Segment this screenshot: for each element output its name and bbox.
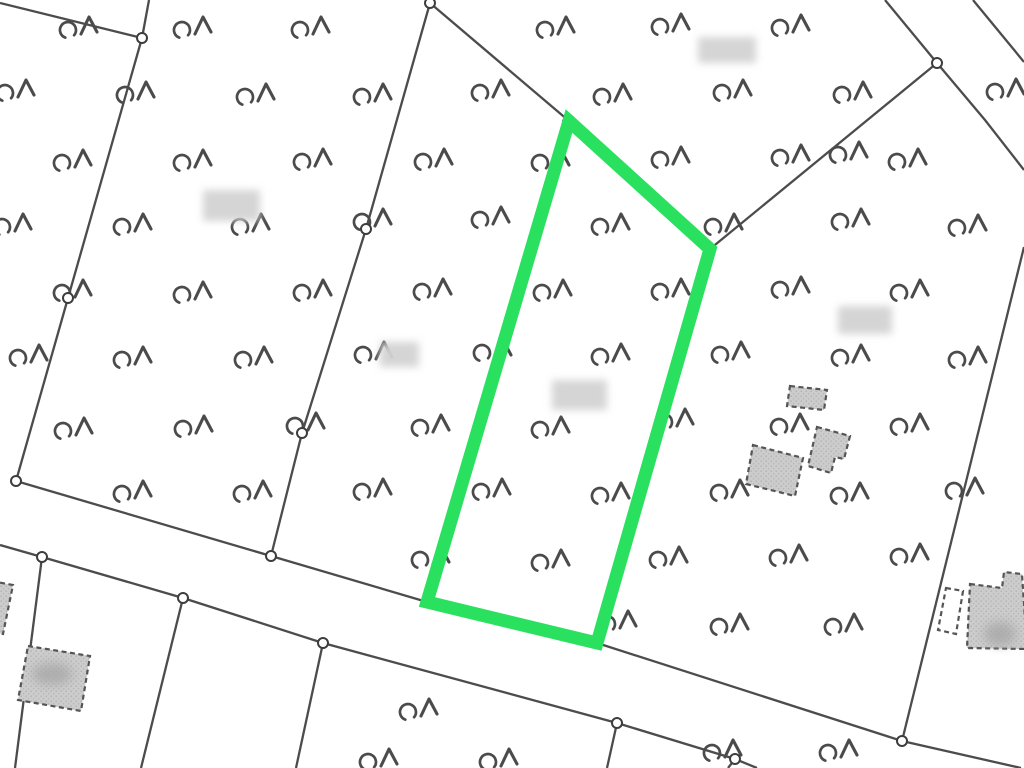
tree-icon [831,483,868,504]
parcel-boundary-line [296,643,323,768]
building-footprint [787,386,827,410]
tree-icon [174,150,211,171]
blurred-parcel-label [203,190,260,221]
boundary-vertex-marker [612,718,622,728]
parcel-boundary-line [0,545,757,768]
tree-icon [10,345,47,366]
tree-icon [354,209,391,230]
tree-icon [825,614,862,635]
tree-icon [294,149,331,170]
tree-icon [891,280,928,301]
tree-icon [54,150,91,171]
tree-icon [592,344,629,365]
cadastral-map-svg[interactable] [0,0,1024,768]
tree-icon [0,214,31,235]
parcel-boundary-line [973,0,1024,62]
parcel-boundary-line [430,3,569,121]
tree-icon [117,82,154,103]
tree-icon [712,342,749,363]
tree-icon [891,414,928,435]
blurred-parcel-label [838,306,892,334]
tree-icon [705,214,742,235]
tree-icon [889,149,926,170]
parcel-boundary-line [141,598,183,768]
building-smudge [984,622,1016,646]
tree-icon [354,84,391,105]
buildings-layer [0,386,1024,711]
tree-icon [711,480,748,501]
tree-icon [0,80,34,101]
tree-icon [772,277,809,298]
tree-icon [473,479,510,500]
tree-icon [414,279,451,300]
boundary-vertex-marker [932,58,942,68]
building-footprint [746,445,803,496]
building-outline-dashed [938,588,963,634]
blurred-parcel-label [380,342,419,367]
parcel-boundary-line [885,0,937,63]
cadastral-map-view[interactable] [0,0,1024,768]
parcel-boundary-line [902,247,1024,741]
building-smudge [32,663,72,685]
tree-icon [832,209,869,230]
parcel-boundary-line [937,63,1024,170]
tree-icon [650,547,687,568]
tree-icon [592,214,629,235]
tree-icon [174,282,211,303]
boundary-vertex-marker [361,224,371,234]
tree-icon [412,415,449,436]
tree-icon [532,417,569,438]
tree-icon [532,550,569,571]
boundary-vertex-marker [425,0,435,8]
tree-icon [772,145,809,166]
tree-icon [114,347,151,368]
tree-icon [949,347,986,368]
tree-icon [55,418,92,439]
tree-icon [711,614,748,635]
parcel-boundary-line [0,3,142,38]
tree-icon [237,84,274,105]
tree-icon [114,481,151,502]
tree-icon [294,280,331,301]
tree-icon [174,17,211,38]
boundary-vertex-marker [63,293,73,303]
parcel-boundary-line [607,723,617,768]
tree-icon [770,545,807,566]
boundary-vertex-marker [178,593,188,603]
tree-icon [235,347,272,368]
tree-icon [592,483,629,504]
vertex-nodes-layer [11,0,942,764]
blurred-labels-layer [203,37,892,410]
tree-icon [360,749,397,768]
tree-icon [175,416,212,437]
tree-icon [652,14,689,35]
tree-icon [415,149,452,170]
blurred-parcel-label [552,380,607,410]
tree-icon [480,749,517,768]
tree-icon [400,699,437,720]
tree-icon [820,740,857,761]
tree-icon [292,17,329,38]
tree-icon [949,215,986,236]
boundary-vertex-marker [266,551,276,561]
boundary-vertex-marker [318,638,328,648]
blurred-parcel-label [698,37,756,63]
boundary-vertex-marker [11,476,21,486]
boundary-vertex-marker [897,736,907,746]
tree-icon [987,79,1024,100]
tree-icon [594,84,631,105]
parcel-boundaries-layer [0,0,1024,768]
tree-icon [537,17,574,38]
building-footprint [808,427,850,473]
tree-icon [234,481,271,502]
boundary-vertex-marker [37,552,47,562]
tree-icon [652,147,689,168]
boundary-vertex-marker [730,754,740,764]
tree-icon [772,15,809,36]
tree-icon [832,345,869,366]
tree-icon [834,82,871,103]
parcel-boundary-line [16,38,142,481]
tree-icon [534,280,571,301]
trees-layer [0,14,1024,768]
tree-icon [472,207,509,228]
tree-icon [114,214,151,235]
tree-icon [354,479,391,500]
boundary-vertex-marker [297,428,307,438]
tree-icon [771,414,808,435]
tree-icon [714,80,751,101]
boundary-vertex-marker [137,33,147,43]
parcel-boundary-line [271,3,430,556]
tree-icon [472,80,509,101]
tree-icon [652,279,689,300]
building-footprint [0,578,13,634]
tree-icon [891,544,928,565]
